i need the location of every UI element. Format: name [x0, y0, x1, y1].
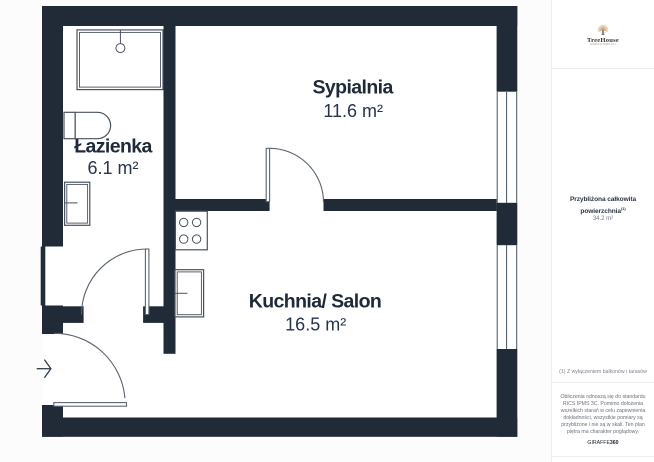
svg-text:11.6 m²: 11.6 m² — [323, 101, 383, 121]
svg-text:Łazienka: Łazienka — [74, 136, 152, 158]
svg-text:16.5 m²: 16.5 m² — [285, 315, 346, 335]
svg-text:6.1 m²: 6.1 m² — [87, 158, 138, 178]
svg-text:Kuchnia/ Salon: Kuchnia/ Salon — [249, 291, 381, 313]
svg-text:Sypialnia: Sypialnia — [312, 77, 393, 99]
